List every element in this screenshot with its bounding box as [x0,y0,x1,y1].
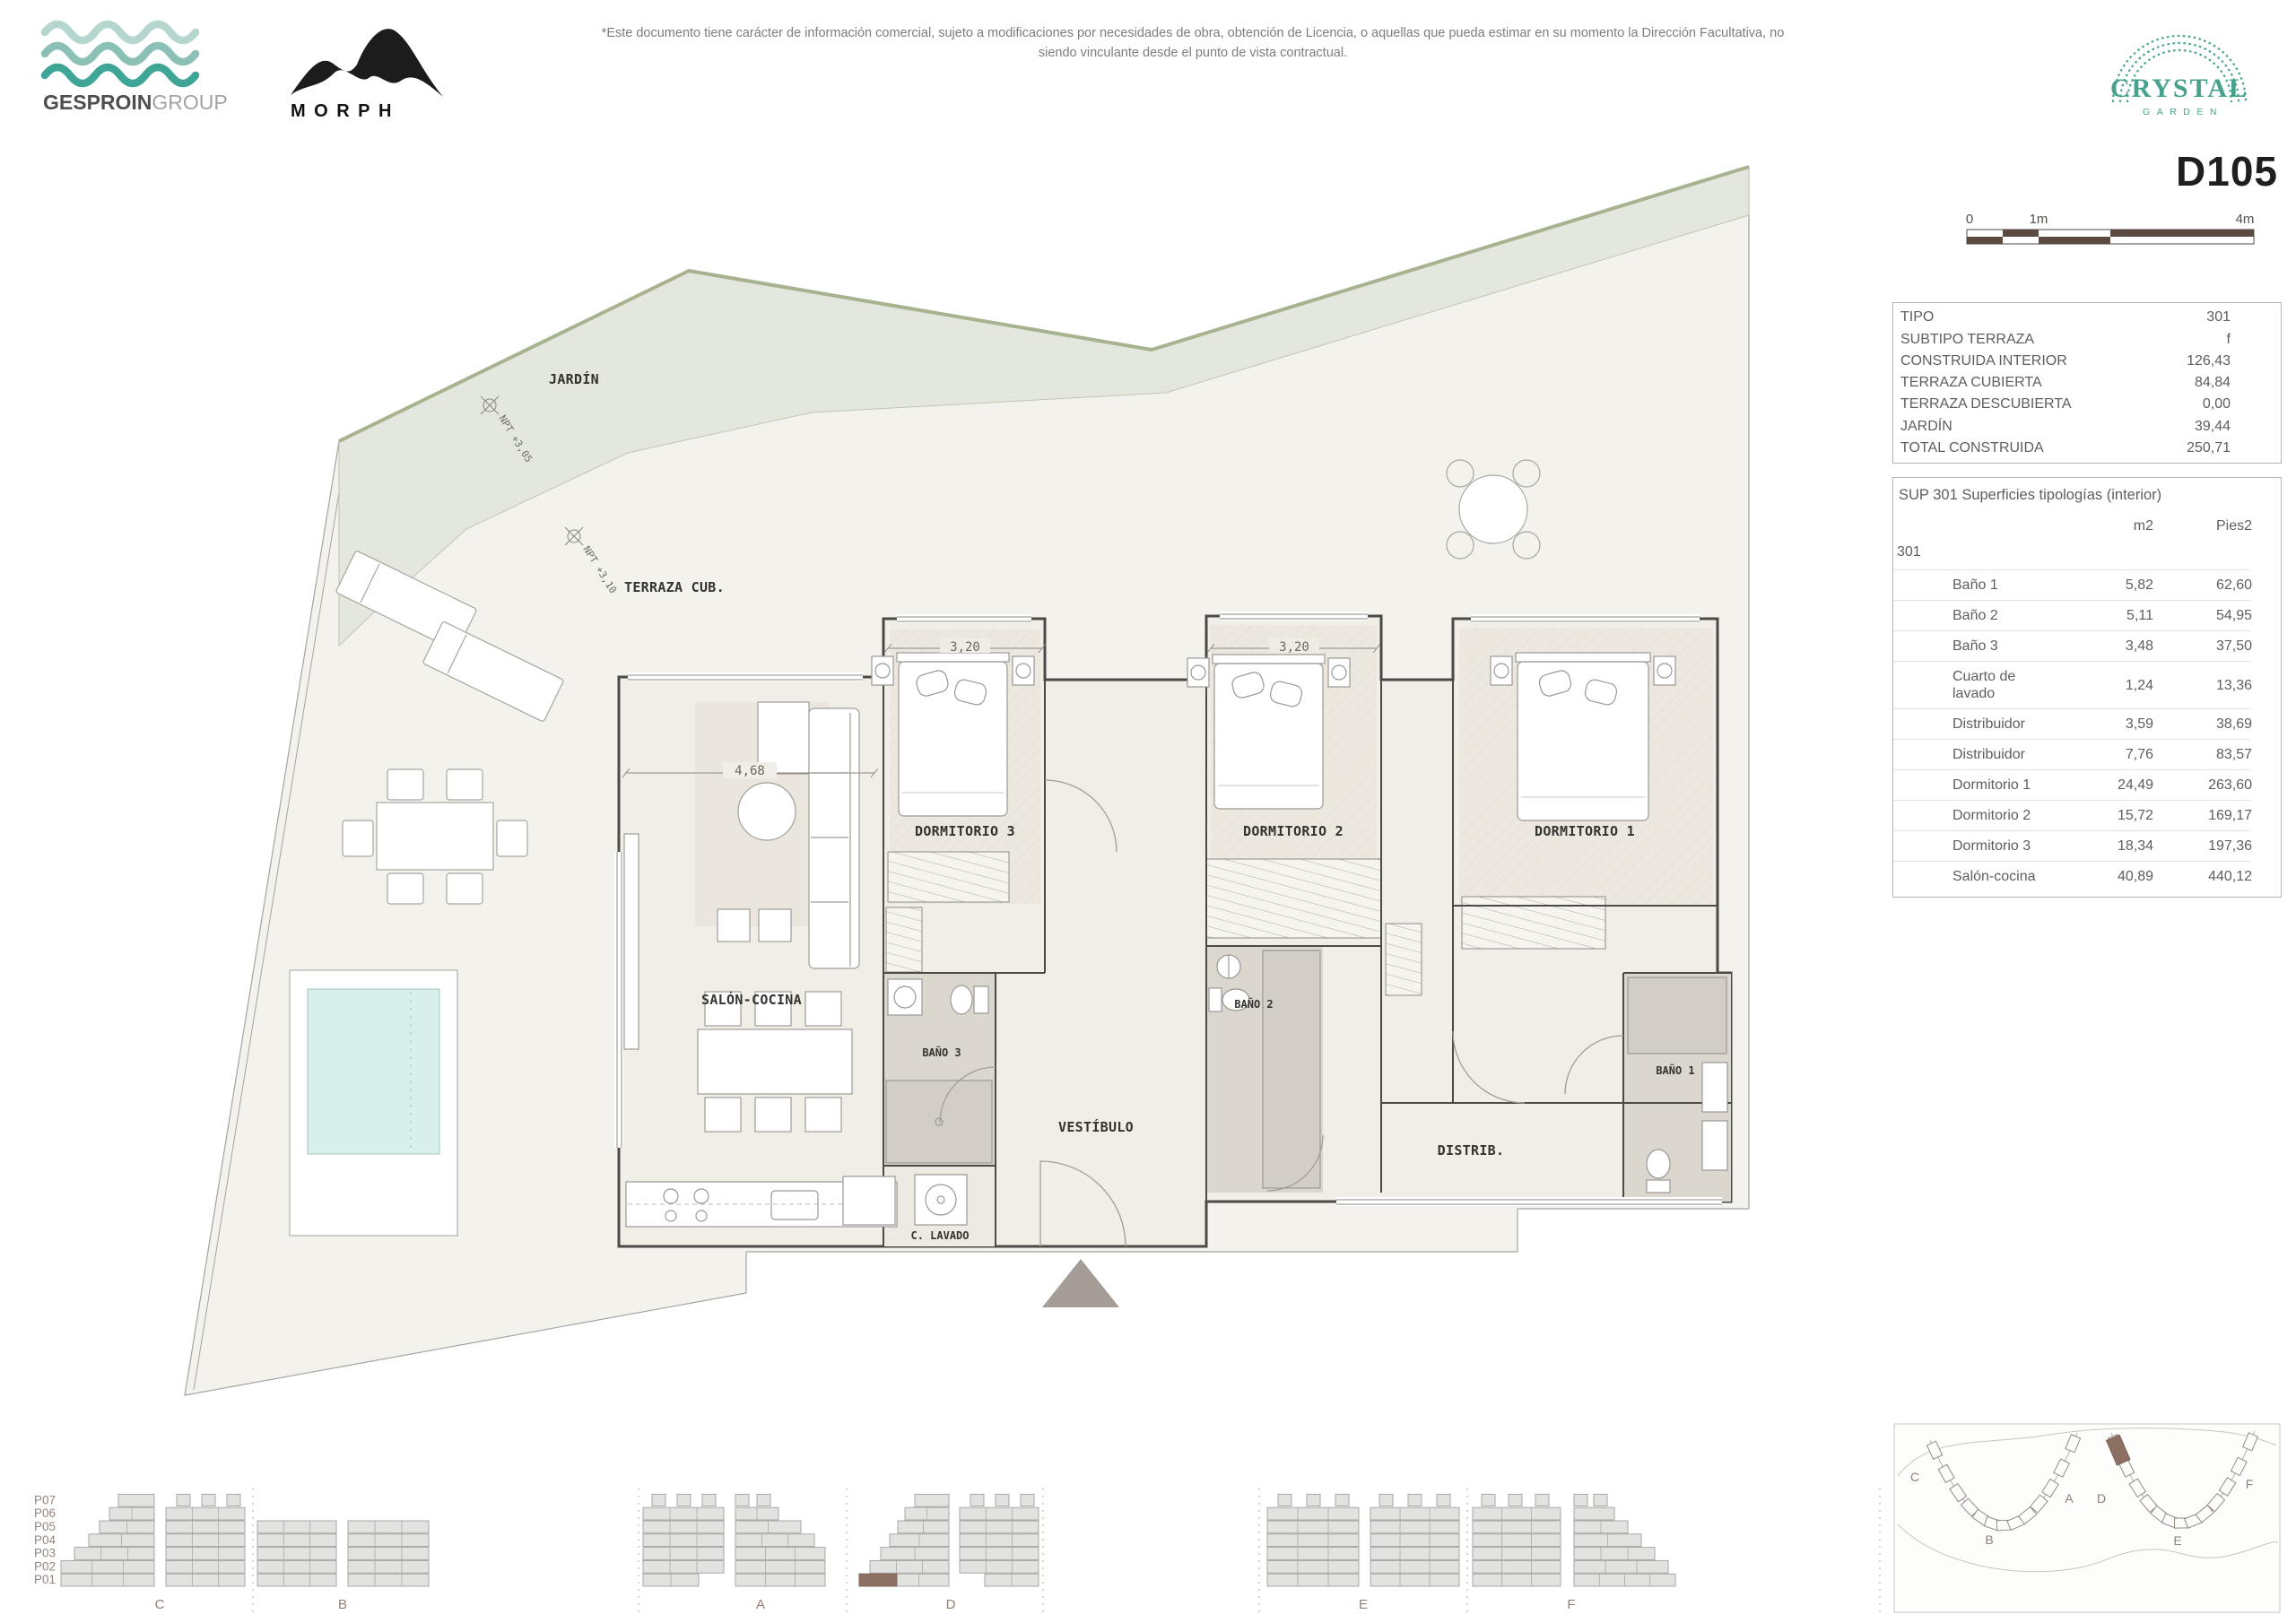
label-bano3: BAÑO 3 [922,1046,961,1059]
col-m2: m2 [2053,517,2153,534]
table-row: Dormitorio 215,72169,17 [1893,800,2250,830]
label-distrib: DISTRIB. [1438,1142,1505,1159]
site-letter: F [2246,1477,2254,1491]
surfaces-table: SUP 301 Superficies tipologías (interior… [1892,477,2282,898]
floor-label: P06 [34,1506,56,1520]
table-row: Distribuidor7,7683,57 [1893,739,2250,769]
table-row: TERRAZA CUBIERTA84,84 [1893,376,2281,390]
label-vestibulo: VESTÍBULO [1058,1118,1134,1135]
site-letter: E [2173,1533,2181,1548]
site-letter: A [2065,1491,2074,1506]
table-row: CONSTRUIDA INTERIOR126,43 [1893,354,2281,369]
disclaimer-line1: *Este documento tiene carácter de inform… [502,23,1883,43]
block-letter: B [338,1597,347,1612]
site-letter: B [1985,1532,1993,1547]
label-dorm1: DORMITORIO 1 [1535,823,1635,839]
morph-wordmark: MORPH [291,101,400,121]
scale-bar: 0 1m 4m [1966,212,2255,244]
label-jardin: JARDÍN [549,370,599,387]
scale-4m: 4m [2236,212,2255,227]
table-row: TERRAZA DESCUBIERTA0,00 [1893,397,2281,412]
pool [290,970,457,1236]
dim-dorm3: 3,20 [950,640,980,655]
floor-label: P04 [34,1533,57,1547]
gesproin-wordmark: GESPROINGROUP [43,91,228,114]
label-bano2: BAÑO 2 [1234,997,1273,1011]
site-plan: CBADEF [1894,1424,2280,1612]
label-salon: SALÓN-COCINA [701,991,802,1008]
site-letter: D [2097,1491,2106,1506]
crystal-wordmark: CRYSTAL [2110,74,2248,103]
apartment: 4,68 3,20 3,20 [614,612,1731,1307]
block-letter: C [155,1597,165,1612]
label-dorm2: DORMITORIO 2 [1243,823,1344,839]
surfaces-header: m2 Pies2 [1893,511,2250,541]
surfaces-group: 301 [1893,541,2281,569]
block-letter: E [1359,1597,1368,1612]
beds [872,653,1675,820]
col-pies2: Pies2 [2153,517,2252,534]
garden-wordmark: GARDEN [2143,107,2223,117]
scale-1m: 1m [2030,212,2048,227]
block-letter: F [1567,1597,1575,1612]
label-lavado: C. LAVADO [910,1229,969,1242]
building-elevations: P07P06P05P04P03P02P01CBADEF [34,1488,1880,1614]
label-bano1: BAÑO 1 [1656,1063,1694,1077]
surfaces-title: SUP 301 Superficies tipologías (interior… [1893,478,2281,511]
floor-label: P02 [34,1559,56,1573]
disclaimer: *Este documento tiene carácter de inform… [502,23,1883,63]
morph-logo: MORPH [280,13,450,122]
table-row: TIPO301 [1893,310,2281,325]
gesproin-logo: GESPROINGROUP [39,13,255,122]
table-row: Dormitorio 124,49263,60 [1893,769,2250,800]
plan-sheet: 4,68 3,20 3,20 NPT +3,05 NPT +3,10 JARDÍ… [0,0,2296,1623]
unit-code: D105 [2176,147,2278,195]
table-row: Baño 15,8262,60 [1893,569,2250,600]
table-row: Salón-cocina40,89440,12 [1893,861,2250,891]
floor-label: P07 [34,1493,56,1506]
entrance-arrow [1042,1259,1119,1307]
block-letter: D [946,1597,956,1612]
table-row: JARDÍN39,44 [1893,420,2281,434]
highlighted-unit-block [859,1574,897,1586]
table-row: Dormitorio 318,34197,36 [1893,830,2250,861]
crystal-garden-logo: CRYSTAL GARDEN [2079,5,2283,140]
floor-label: P05 [34,1520,56,1533]
mountain-icon [291,29,443,97]
table-row: SUBTIPO TERRAZAf [1893,333,2281,347]
block-letter: A [756,1597,765,1612]
summary-table: TIPO301SUBTIPO TERRAZAfCONSTRUIDA INTERI… [1892,302,2282,464]
table-row: TOTAL CONSTRUIDA250,71 [1893,441,2281,456]
floor-label: P01 [34,1573,56,1586]
table-row: Distribuidor3,5938,69 [1893,708,2250,739]
dim-dorm2: 3,20 [1279,640,1309,655]
label-dorm3: DORMITORIO 3 [915,823,1015,839]
site-letter: C [1910,1470,1919,1484]
table-row: Cuarto de lavado1,2413,36 [1893,661,2250,708]
floor-label: P03 [34,1547,56,1560]
kitchen [626,1175,967,1227]
table-row: Baño 25,1154,95 [1893,600,2250,630]
table-row: Baño 33,4837,50 [1893,630,2250,661]
label-terraza: TERRAZA CUB. [624,579,725,595]
dim-salon: 4,68 [735,764,765,778]
scale-0: 0 [1966,212,1973,227]
disclaimer-line2: siendo vinculante desde el punto de vist… [502,43,1883,63]
